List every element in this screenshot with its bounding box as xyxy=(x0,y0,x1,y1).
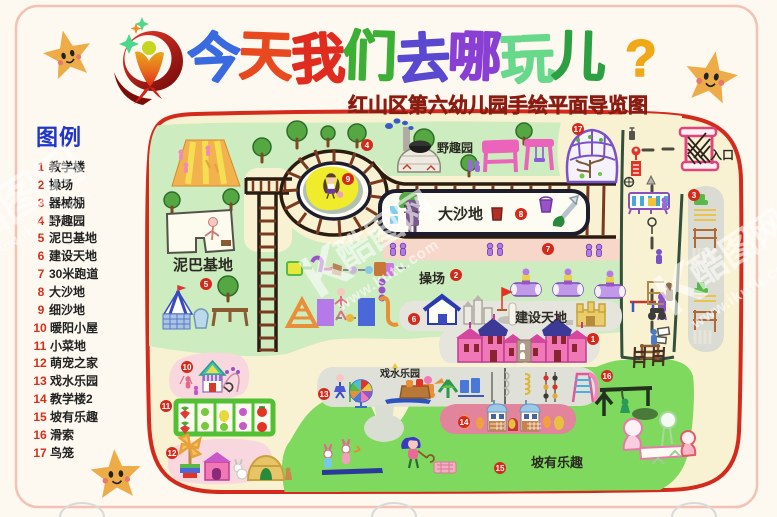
svg-text:玩: 玩 xyxy=(499,29,555,91)
svg-text:红山区第六幼儿园手绘平面导览图: 红山区第六幼儿园手绘平面导览图 xyxy=(348,93,648,117)
svg-text:天: 天 xyxy=(238,26,294,88)
svg-text:坡有乐趣: 坡有乐趣 xyxy=(531,455,584,470)
svg-text:建设天地: 建设天地 xyxy=(48,248,97,263)
svg-text:12: 12 xyxy=(168,449,177,458)
svg-text:10: 10 xyxy=(33,321,47,335)
svg-text:?: ? xyxy=(625,30,657,88)
svg-text:5: 5 xyxy=(204,280,209,289)
svg-text:30米跑道: 30米跑道 xyxy=(49,266,98,281)
svg-text:小菜地: 小菜地 xyxy=(50,338,86,353)
svg-text:去: 去 xyxy=(395,29,452,92)
svg-text:大沙地: 大沙地 xyxy=(49,284,85,299)
svg-text:16: 16 xyxy=(33,428,47,442)
svg-text:10: 10 xyxy=(183,363,192,372)
svg-text:戏水乐园: 戏水乐园 xyxy=(49,373,98,388)
svg-text:泥巴基地: 泥巴基地 xyxy=(173,256,233,274)
svg-text:17: 17 xyxy=(33,446,47,460)
svg-text:儿: 儿 xyxy=(551,26,607,88)
svg-text:哪: 哪 xyxy=(447,26,503,88)
svg-text:操场: 操场 xyxy=(419,271,445,286)
svg-text:9: 9 xyxy=(38,303,45,317)
svg-text:14: 14 xyxy=(460,418,469,427)
svg-text:4: 4 xyxy=(365,141,370,150)
svg-text:入口: 入口 xyxy=(710,148,734,162)
svg-text:暖阳小屋: 暖阳小屋 xyxy=(50,320,98,335)
svg-text:11: 11 xyxy=(34,339,47,353)
svg-text:12: 12 xyxy=(33,356,47,370)
svg-text:8: 8 xyxy=(519,210,524,219)
svg-text:11: 11 xyxy=(162,402,171,411)
svg-text:3: 3 xyxy=(692,191,697,200)
svg-text:细沙地: 细沙地 xyxy=(49,302,85,317)
svg-text:15: 15 xyxy=(33,410,47,424)
svg-text:13: 13 xyxy=(33,374,47,388)
svg-text:16: 16 xyxy=(603,372,612,381)
svg-text:7: 7 xyxy=(38,267,45,281)
svg-text:戏水乐园: 戏水乐园 xyxy=(379,367,420,380)
svg-text:6: 6 xyxy=(38,249,45,263)
svg-text:6: 6 xyxy=(412,315,417,324)
svg-text:萌宠之家: 萌宠之家 xyxy=(50,355,99,370)
svg-text:8: 8 xyxy=(38,285,45,299)
svg-text:2: 2 xyxy=(454,271,459,280)
svg-text:9: 9 xyxy=(346,175,351,184)
svg-text:鸟笼: 鸟笼 xyxy=(50,445,74,460)
svg-text:野趣园: 野趣园 xyxy=(437,140,473,155)
svg-text:们: 们 xyxy=(342,26,398,88)
svg-text:大沙地: 大沙地 xyxy=(438,205,483,223)
svg-text:1: 1 xyxy=(591,335,596,344)
svg-text:14: 14 xyxy=(33,392,47,406)
svg-text:15: 15 xyxy=(496,464,505,473)
svg-text:泥巴基地: 泥巴基地 xyxy=(49,230,97,245)
svg-text:我: 我 xyxy=(290,29,346,91)
svg-text:今: 今 xyxy=(186,28,243,91)
svg-text:17: 17 xyxy=(574,125,583,134)
svg-text:13: 13 xyxy=(320,390,329,399)
svg-text:坡有乐趣: 坡有乐趣 xyxy=(50,409,99,424)
svg-text:教学楼2: 教学楼2 xyxy=(49,391,93,406)
svg-text:滑索: 滑索 xyxy=(50,427,74,442)
svg-text:建设天地: 建设天地 xyxy=(515,310,567,325)
svg-text:7: 7 xyxy=(546,245,551,254)
